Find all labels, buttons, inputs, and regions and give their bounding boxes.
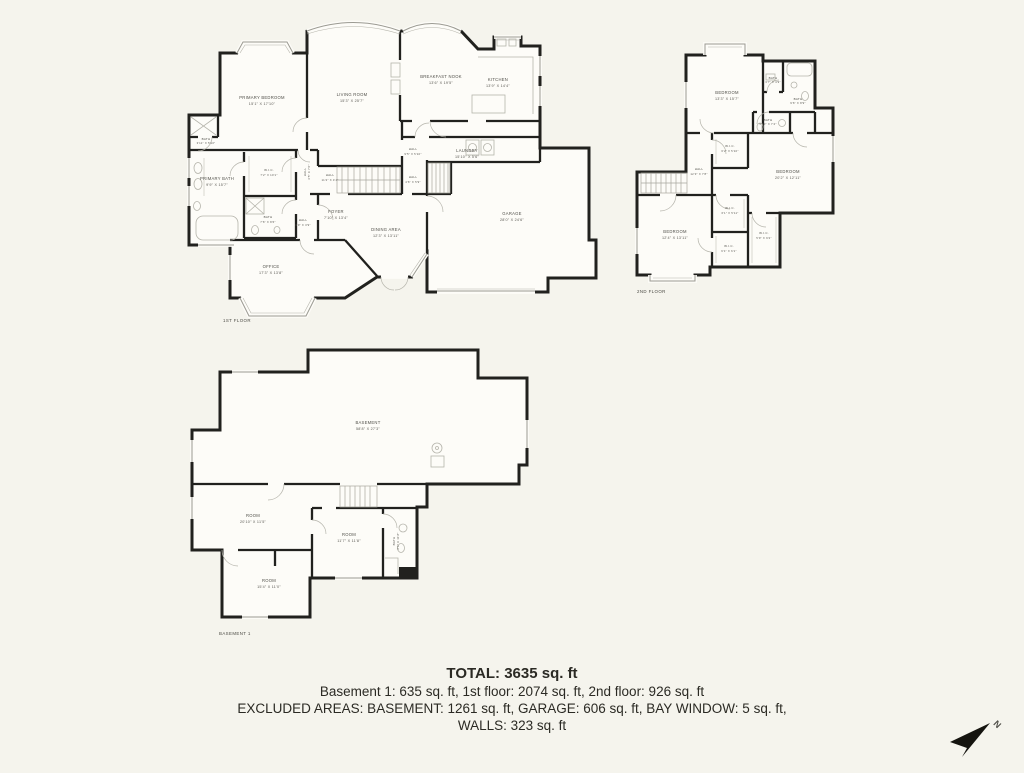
svg-text:13'9" X 14'4": 13'9" X 14'4" (486, 84, 511, 88)
svg-text:ROOM: ROOM (342, 532, 356, 537)
svg-text:BREAKFAST NOOK: BREAKFAST NOOK (420, 74, 462, 79)
svg-text:20'2" X 12'11": 20'2" X 12'11" (775, 176, 802, 180)
svg-text:PRIMARY BATH: PRIMARY BATH (200, 176, 234, 181)
svg-text:11'2" X 4'4": 11'2" X 4'4" (321, 178, 338, 182)
svg-text:DINING AREA: DINING AREA (371, 227, 401, 232)
basement-mechanical-block (399, 567, 417, 578)
svg-text:12'4" X 13'11": 12'4" X 13'11" (662, 236, 689, 240)
svg-text:FOYER: FOYER (328, 209, 344, 214)
first-floor-caption: 1ST FLOOR (223, 318, 251, 323)
svg-text:12'3" X 7'8": 12'3" X 7'8" (690, 172, 707, 176)
floor-plans-graphic: PRIMARY BEDROOM 15'1" X 17'10" LIVING RO… (0, 0, 1024, 768)
svg-text:9'9" X 15'7": 9'9" X 15'7" (206, 183, 228, 187)
summary-floors-line: Basement 1: 635 sq. ft, 1st floor: 2074 … (0, 683, 1024, 700)
svg-text:6'1" X 5'11": 6'1" X 5'11" (721, 211, 738, 215)
svg-text:13'6" X 19'5": 13'6" X 19'5" (429, 81, 454, 85)
svg-text:15'3" X 25'7": 15'3" X 25'7" (340, 99, 365, 103)
first-floor-plan: PRIMARY BEDROOM 15'1" X 17'10" LIVING RO… (189, 23, 596, 324)
second-floor-exterior-walls (637, 44, 833, 281)
svg-text:7'10" X 13'4": 7'10" X 13'4" (324, 216, 349, 220)
svg-text:7'6" X 8'6": 7'6" X 8'6" (260, 220, 275, 224)
svg-text:3'5" X 7'6": 3'5" X 7'6" (307, 164, 311, 179)
svg-text:PRIMARY BEDROOM: PRIMARY BEDROOM (239, 95, 285, 100)
svg-text:6'1" X 6'1": 6'1" X 6'1" (721, 249, 736, 253)
second-floor-caption: 2ND FLOOR (637, 289, 666, 294)
first-floor-exterior-walls (189, 23, 596, 317)
svg-text:5'10" X 7'4": 5'10" X 7'4" (759, 122, 776, 126)
svg-text:BEDROOM: BEDROOM (663, 229, 687, 234)
svg-text:20'10" X 11'5": 20'10" X 11'5" (240, 520, 267, 524)
summary-total: TOTAL: 3635 sq. ft (0, 664, 1024, 683)
svg-text:3'9" X 3'9": 3'9" X 3'9" (295, 223, 310, 227)
svg-text:LAUNDRY: LAUNDRY (456, 148, 478, 153)
svg-text:5'9" X 9'2": 5'9" X 9'2" (756, 236, 771, 240)
svg-text:W.I.C.: W.I.C. (264, 168, 274, 172)
svg-text:W.I.C.: W.I.C. (725, 144, 735, 148)
svg-text:HALL: HALL (409, 147, 418, 151)
svg-text:W.I.C.: W.I.C. (759, 231, 769, 235)
basement-caption: BASEMENT 1 (219, 631, 251, 636)
svg-text:58'8" X 27'3": 58'8" X 27'3" (356, 427, 381, 431)
svg-text:BEDROOM: BEDROOM (715, 90, 739, 95)
svg-text:BEDROOM: BEDROOM (776, 169, 800, 174)
svg-text:ROOM: ROOM (246, 513, 260, 518)
second-floor-plan: BEDROOM 13'3" X 15'7" BATH 3'7" X 4'9" B… (637, 44, 833, 294)
svg-text:11'7" X 11'8": 11'7" X 11'8" (337, 539, 361, 543)
svg-text:GARAGE: GARAGE (502, 211, 521, 216)
svg-text:28'0" X 24'6": 28'0" X 24'6" (500, 218, 525, 222)
svg-text:15'10" X 5'6": 15'10" X 5'6" (455, 155, 480, 159)
svg-text:7'2" X 10'1": 7'2" X 10'1" (260, 173, 277, 177)
summary-excluded-line: EXCLUDED AREAS: BASEMENT: 1261 sq. ft, G… (0, 700, 1024, 717)
svg-text:OFFICE: OFFICE (263, 264, 280, 269)
summary-walls-line: WALLS: 323 sq. ft (0, 717, 1024, 734)
svg-text:17'3" X 13'8": 17'3" X 13'8" (259, 271, 284, 275)
svg-text:LIVING ROOM: LIVING ROOM (337, 92, 368, 97)
svg-text:HALL: HALL (695, 167, 704, 171)
svg-text:13'3" X 15'7": 13'3" X 15'7" (715, 97, 740, 101)
floorplan-canvas: PRIMARY BEDROOM 15'1" X 17'10" LIVING RO… (0, 0, 1024, 768)
svg-text:9'6" X 8'9": 9'6" X 8'9" (790, 101, 805, 105)
svg-text:W.I.C.: W.I.C. (724, 244, 734, 248)
svg-text:ROOM: ROOM (262, 578, 276, 583)
svg-text:4'6" X 5'9": 4'6" X 5'9" (405, 180, 420, 184)
svg-text:15'4" X 11'0": 15'4" X 11'0" (257, 585, 281, 589)
basement-plan: BASEMENT 58'8" X 27'3" ROOM 20'10" X 11'… (192, 350, 527, 636)
svg-text:9'5" X 5'10": 9'5" X 5'10" (404, 152, 421, 156)
svg-text:HALL: HALL (326, 173, 335, 177)
svg-text:W.I.C.: W.I.C. (725, 206, 735, 210)
area-summary: TOTAL: 3635 sq. ft Basement 1: 635 sq. f… (0, 664, 1024, 734)
svg-text:3'7" X 4'9": 3'7" X 4'9" (765, 80, 780, 84)
svg-text:HALL: HALL (299, 218, 308, 222)
svg-text:12'3" X 13'11": 12'3" X 13'11" (373, 234, 400, 238)
svg-text:6'2" X 5'10": 6'2" X 5'10" (721, 149, 738, 153)
svg-text:BATH: BATH (264, 215, 273, 219)
svg-text:BASEMENT: BASEMENT (355, 420, 380, 425)
svg-text:HALL: HALL (409, 175, 418, 179)
svg-text:15'1" X 17'10": 15'1" X 17'10" (249, 102, 276, 106)
svg-text:KITCHEN: KITCHEN (488, 77, 508, 82)
svg-text:3'11" X 5'10": 3'11" X 5'10" (197, 141, 216, 145)
svg-text:6'0" X 11'8": 6'0" X 11'8" (396, 532, 400, 549)
